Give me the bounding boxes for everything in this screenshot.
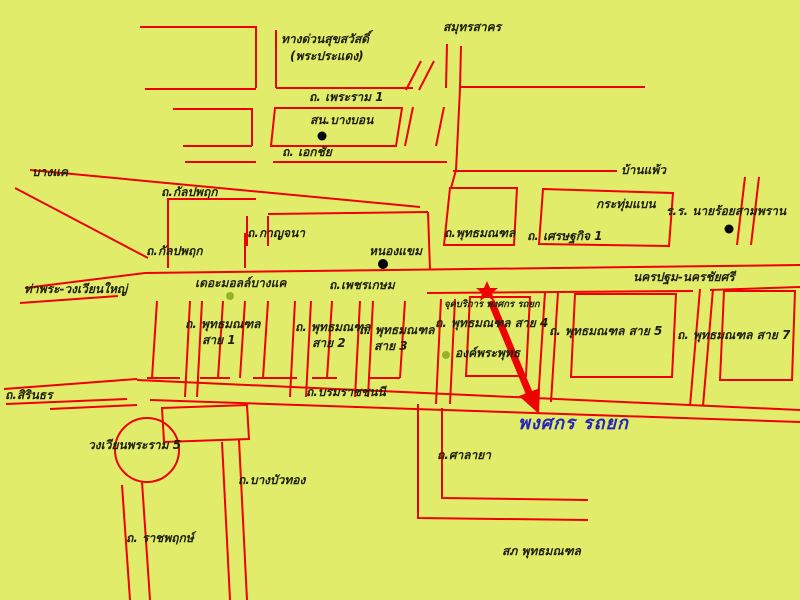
label-kanlapaphruek-upper: ถ.กัลปพฤก: [161, 186, 218, 199]
label-kanlapaphruek-lower: ถ.กัลปพฤก: [146, 245, 203, 258]
label-buddha-monument: องค์พระพุทธ: [455, 347, 520, 360]
label-bang-bua-thong-road: ถ.บางบัวทอง: [238, 474, 305, 487]
label-sai7-road: ถ. พุทธมณฑล สาย 7: [677, 329, 790, 342]
label-sai3-line2: สาย 3: [374, 340, 408, 353]
label-nong-khaem: หนองแขม: [369, 245, 422, 258]
label-the-mall: เดอะมอลล์บางแค: [195, 277, 286, 290]
label-ratchaphruek-road: ถ. ราชพฤกษ์: [126, 532, 194, 545]
buddha-monument-dot: [442, 351, 450, 359]
bang-bon-station-dot: [318, 132, 327, 141]
label-ekachai-road: ถ. เอกชัย: [282, 146, 332, 159]
road-network-svg: [0, 0, 800, 600]
label-police-station: สภ พุทธมณฑล: [502, 545, 581, 558]
label-phongsakorn-towing: พงศกร รถยก: [518, 415, 629, 434]
label-phetkasem-road: ถ.เพชรเกษม: [329, 279, 395, 292]
label-cadet-school: ร.ร. นายร้อยสามพราน: [666, 205, 786, 218]
label-tha-phra: ท่าพระ-วงเวียนใหญ่: [24, 283, 127, 296]
road-map: ทางด่วนสุขสวัสดิ์ (พระประแดง) สมุทรสาคร …: [0, 0, 800, 600]
label-kanchana-road: ถ.กาญจนา: [247, 227, 305, 240]
label-sai1-line2: สาย 1: [202, 334, 236, 347]
label-sai1-line1: ถ. พุทธมณฑล: [185, 318, 261, 331]
label-service-point: จุดบริการ พงศกร รถยก: [444, 300, 540, 310]
label-ban-phaeo: บ้านแพ้ว: [621, 164, 666, 177]
label-borommaratchachonnani: ถ.บรมราชชนนี: [306, 386, 386, 399]
nong-khaem-dot: [378, 259, 388, 269]
label-samut-sakhon: สมุทรสาคร: [443, 21, 501, 34]
label-rama5-roundabout: วงเวียนพระราม 5: [88, 439, 181, 452]
label-krathum-baen: กระทุ่มแบน: [596, 198, 656, 211]
road-lines: [4, 27, 800, 600]
cadet-school-dot: [725, 225, 734, 234]
label-sai2-line2: สาย 2: [312, 337, 346, 350]
label-bang-khae: บางแค: [32, 166, 68, 179]
label-bang-bon-station: สน.บางบอน: [310, 114, 373, 127]
label-rama1-road: ถ. เพระราม 1: [309, 91, 384, 104]
label-expressway: ทางด่วนสุขสวัสดิ์: [281, 33, 369, 46]
label-setthakit-road: ถ. เศรษฐกิจ 1: [527, 230, 603, 243]
label-sai3-line1: ถ. พุทธมณฑล: [359, 324, 435, 337]
label-sai4-road: ถ. พุทธมณฑล สาย 4: [435, 317, 548, 330]
label-sirindhorn-road: ถ.สิรินธร: [5, 389, 53, 402]
label-expressway-sub: (พระประแดง): [290, 50, 364, 63]
label-sai5-road: ถ. พุทธมณฑล สาย 5: [549, 325, 662, 338]
label-nakhon-pathom: นครปฐม-นครชัยศรี: [633, 271, 735, 284]
label-salaya-road: ถ.ศาลายา: [437, 449, 491, 462]
label-phutthamonthon: ถ.พุทธมณฑล: [444, 227, 515, 240]
the-mall-dot: [226, 292, 234, 300]
